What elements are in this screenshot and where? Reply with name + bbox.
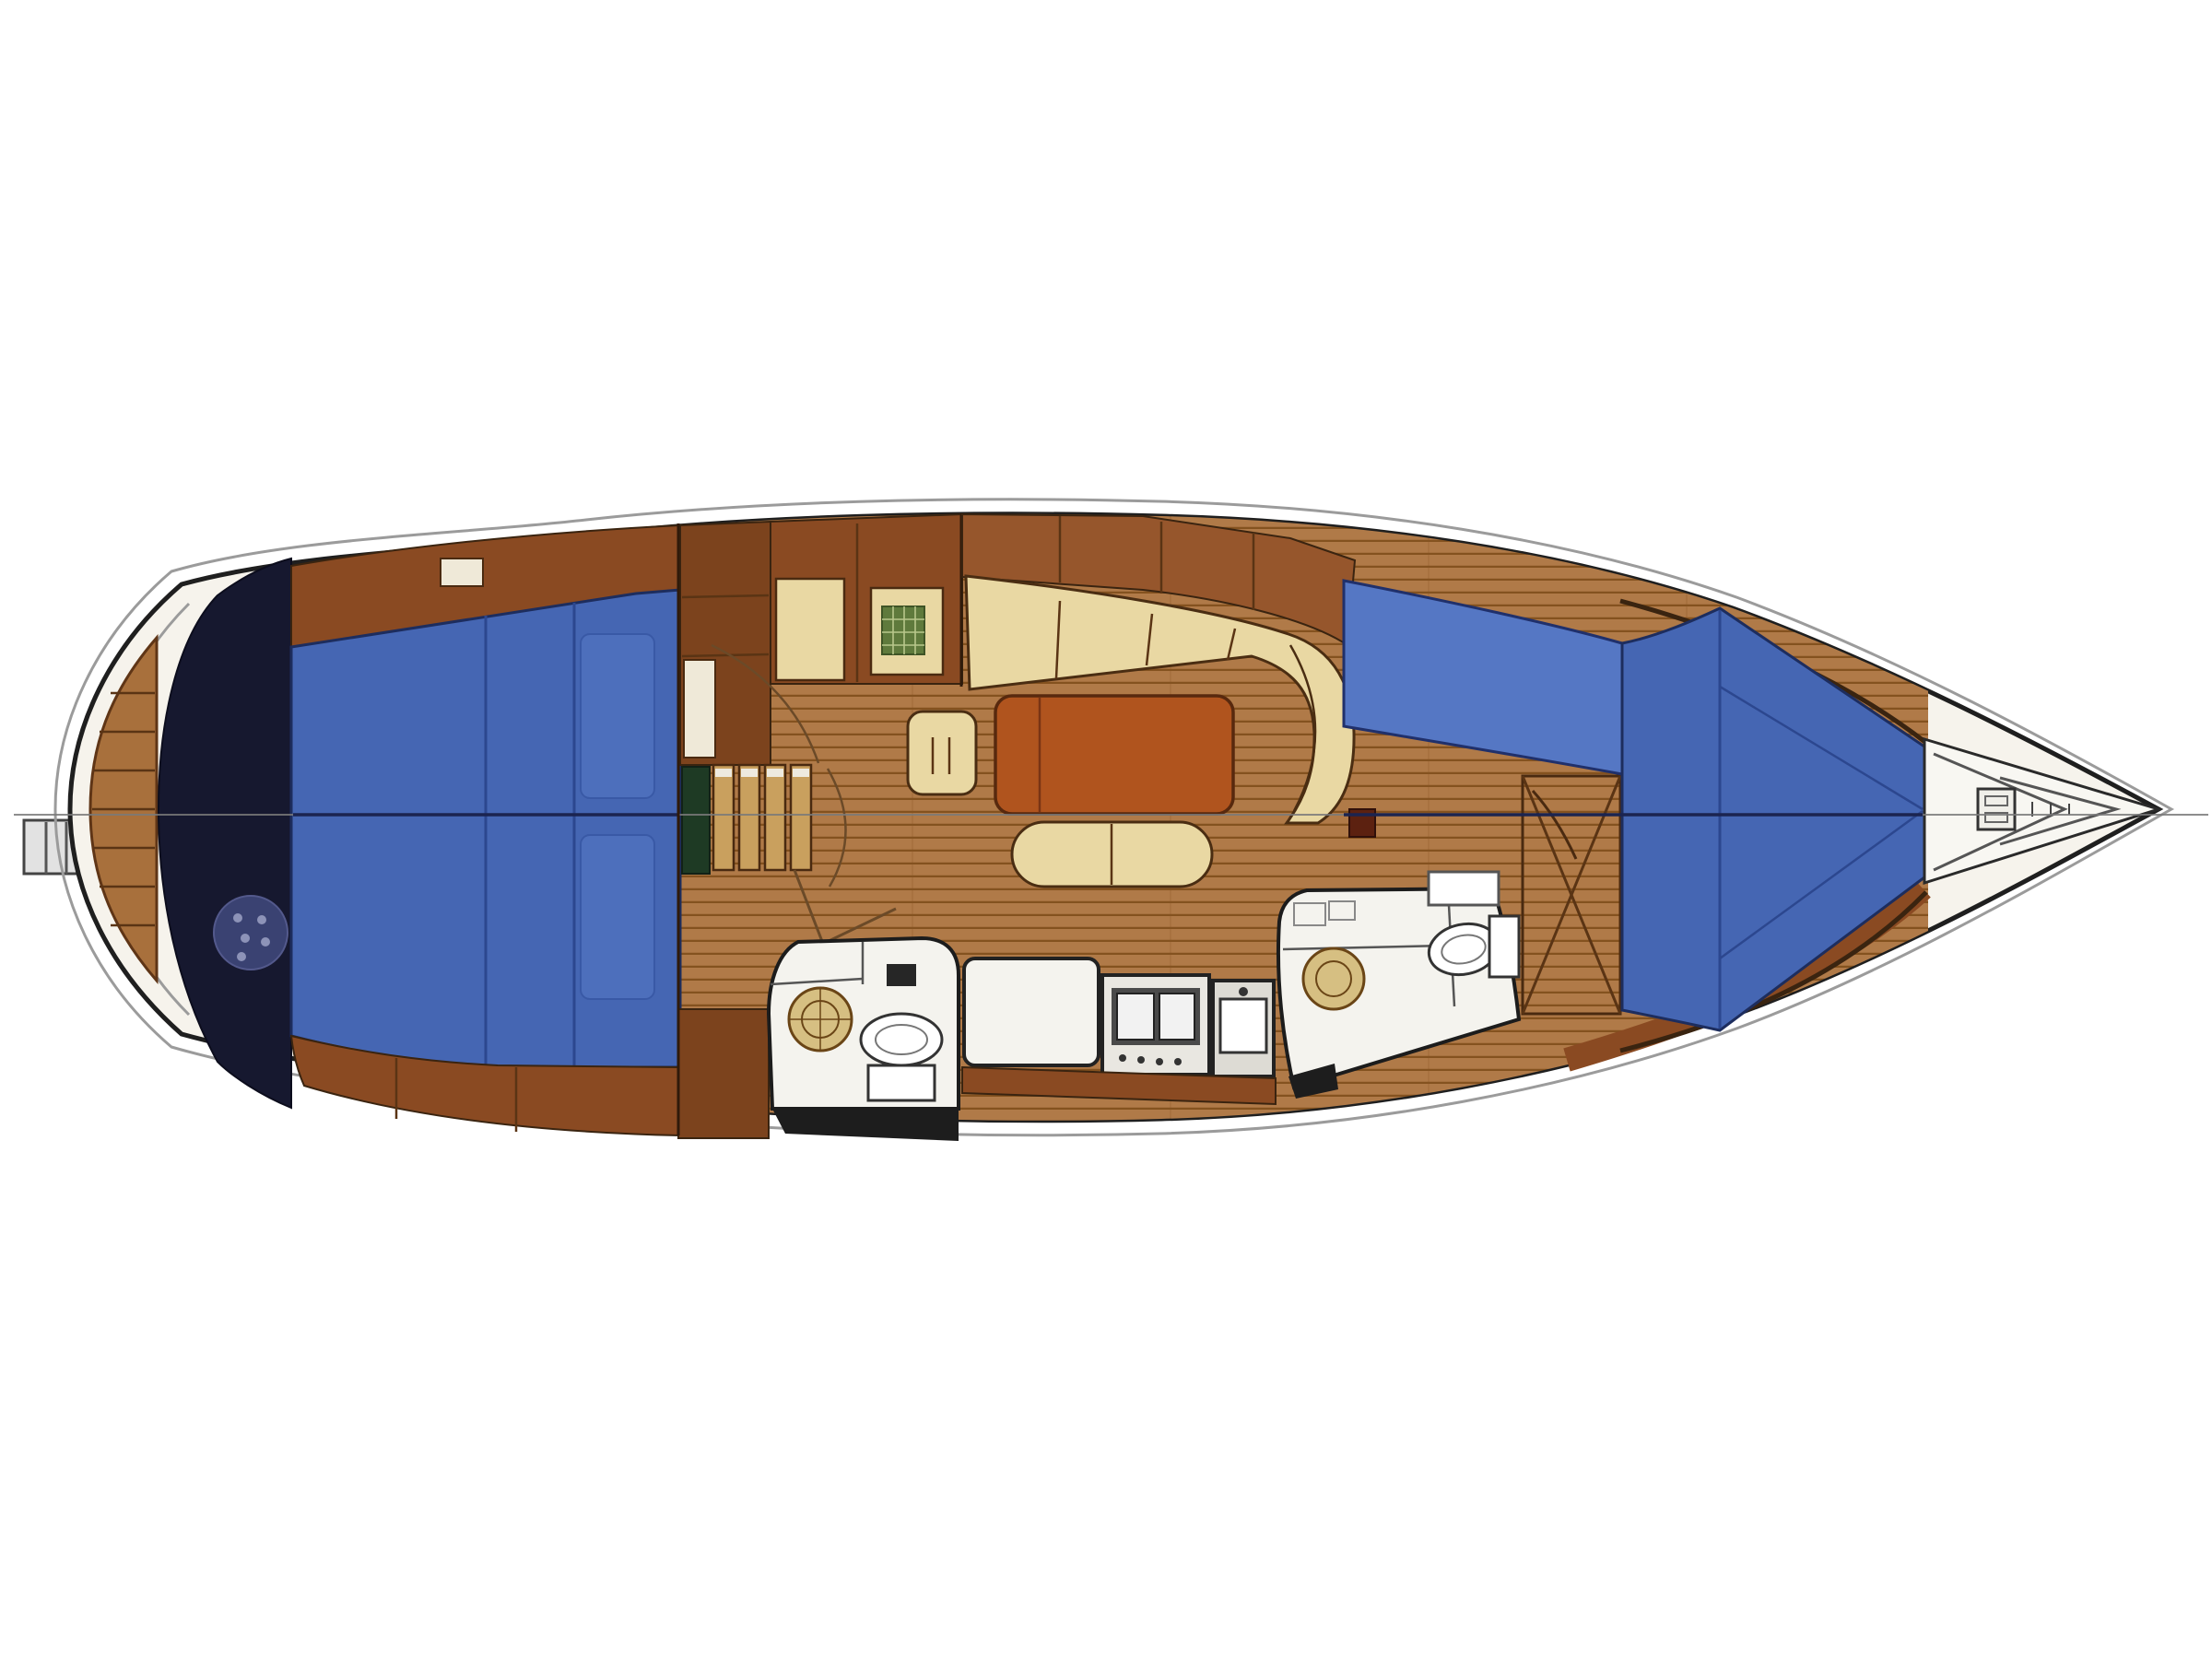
stool — [908, 711, 976, 794]
galley-counter — [964, 958, 1099, 1065]
saloon-table — [995, 696, 1233, 814]
aft-shelf-locker — [441, 559, 483, 586]
companionway-engine-box — [682, 767, 710, 874]
forward-head-sink — [1303, 948, 1364, 1009]
boat-floor-plan — [0, 0, 2212, 1658]
faucet — [1239, 987, 1248, 996]
aft-head — [769, 938, 959, 1141]
companionway-door-panel — [684, 660, 715, 758]
boat-floor-plan-stage — [0, 0, 2212, 1658]
wine-rack-lattice — [882, 606, 924, 654]
forward-head-toilet-tank — [1489, 916, 1519, 977]
wet-locker — [678, 1009, 769, 1138]
berth-pillow — [581, 634, 654, 798]
aft-cabin — [291, 525, 680, 1135]
aft-head-hatch — [887, 964, 916, 986]
windlass-box — [1978, 789, 2015, 829]
aft-head-toilet-tank — [868, 1065, 935, 1100]
galley — [962, 958, 1276, 1104]
galley-sink-unit — [1213, 981, 1274, 1076]
cabinet-locker — [776, 579, 844, 680]
berth-pillow — [581, 835, 654, 999]
aft-head-toilet-bowl — [861, 1014, 942, 1065]
galley-stove — [1102, 975, 1209, 1075]
forward-head-shelf — [1429, 872, 1499, 905]
